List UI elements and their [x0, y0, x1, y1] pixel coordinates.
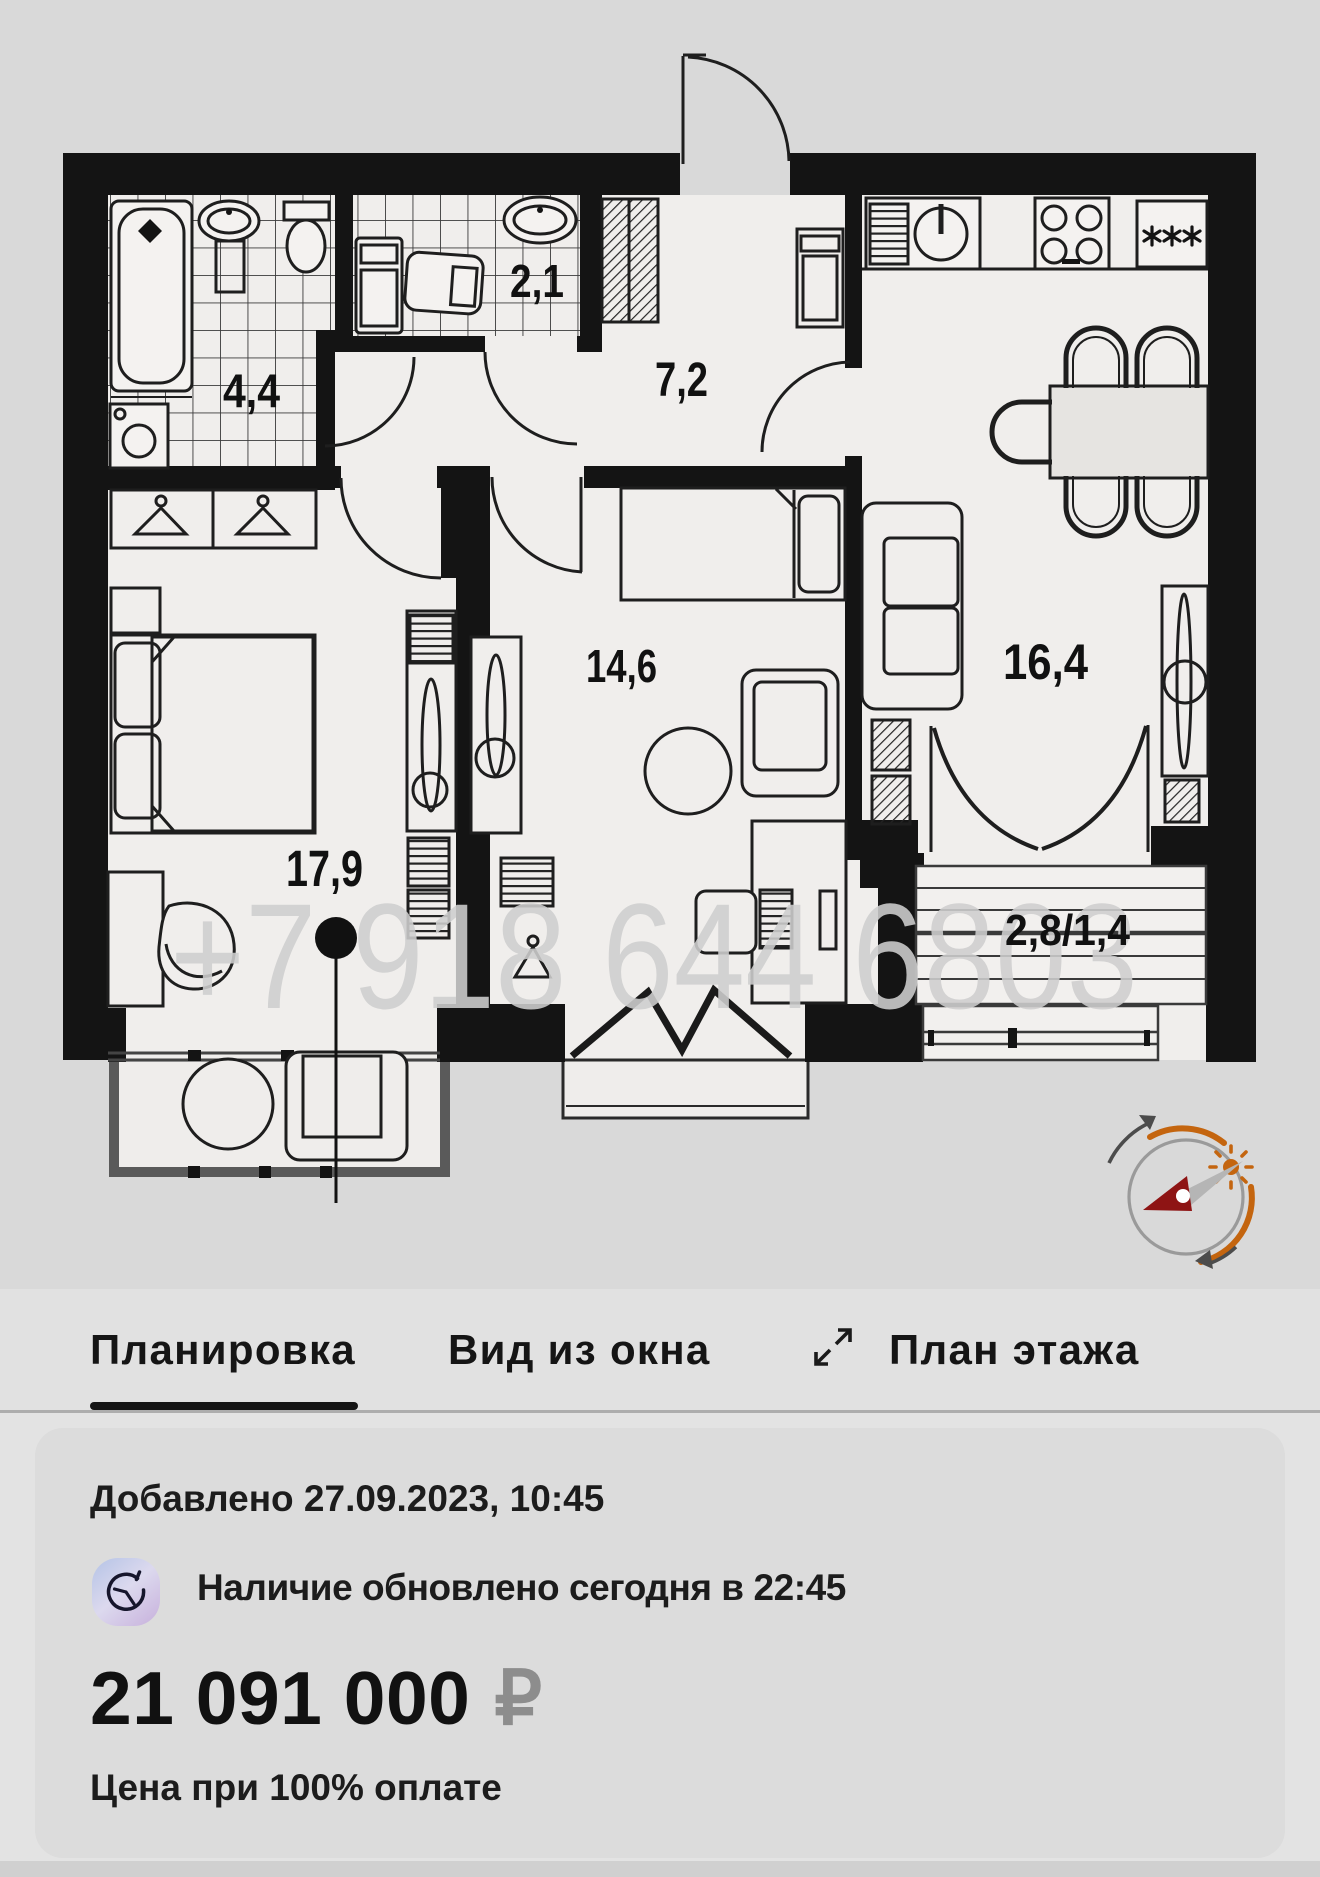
svg-text:2,8/1,4: 2,8/1,4 — [1005, 906, 1130, 955]
svg-text:2,1: 2,1 — [510, 255, 564, 307]
svg-text:17,9: 17,9 — [286, 840, 363, 897]
svg-text:14,6: 14,6 — [586, 640, 657, 692]
svg-text:7,2: 7,2 — [655, 354, 708, 407]
svg-text:16,4: 16,4 — [1003, 634, 1088, 690]
svg-text:+7 918 644 6803: +7 918 644 6803 — [170, 872, 1138, 1040]
svg-text:4,4: 4,4 — [223, 364, 280, 417]
